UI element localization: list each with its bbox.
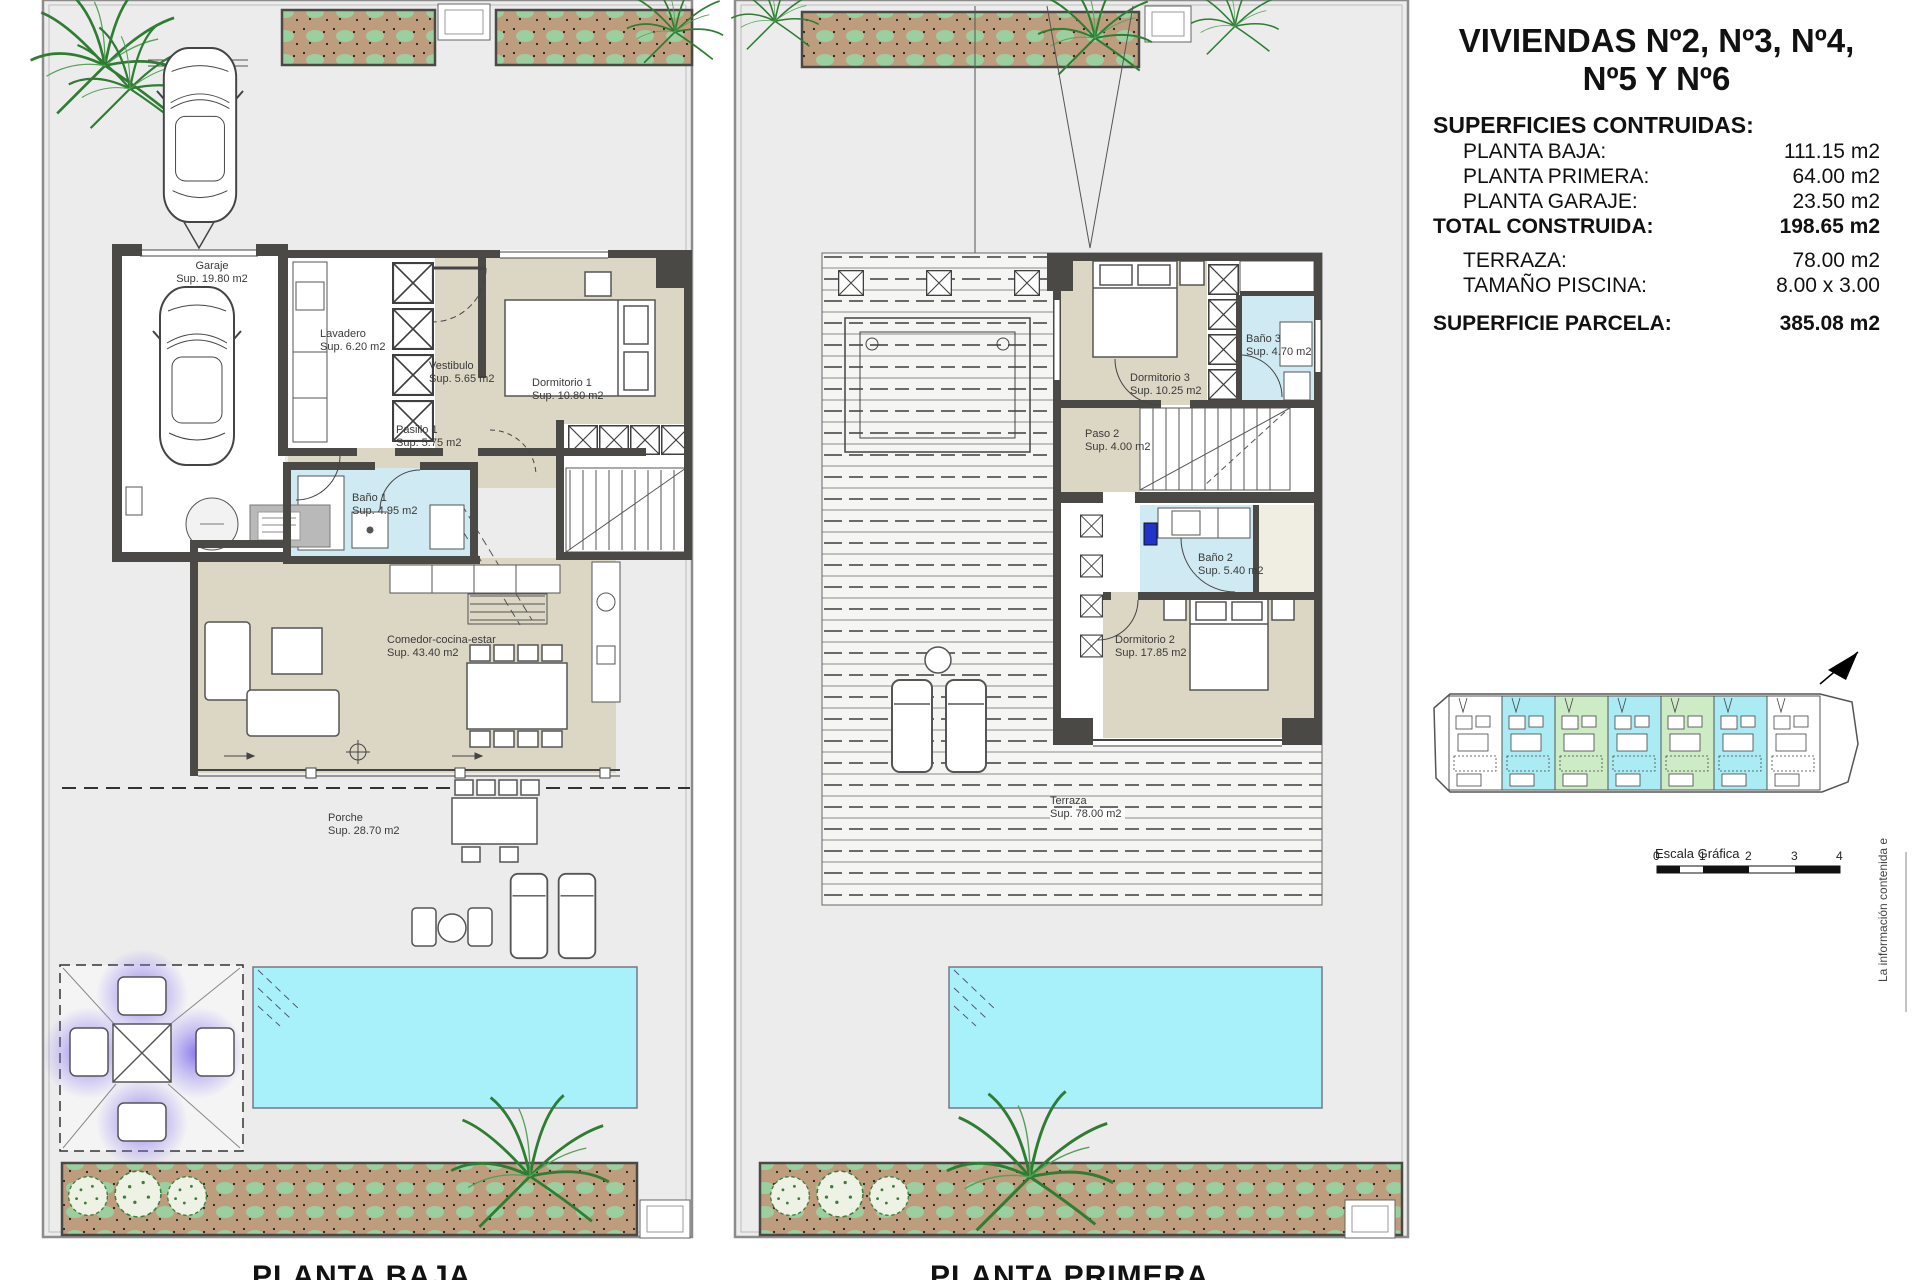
surface-row-piscina: TAMAÑO PISCINA: 8.00 x 3.00 bbox=[1433, 273, 1880, 298]
room-label-lavadero: LavaderoSup. 6.20 m2 bbox=[320, 328, 385, 354]
pool-upper bbox=[949, 967, 1322, 1108]
room-label-dormitorio-2: Dormitorio 2Sup. 17.85 m2 bbox=[1115, 634, 1187, 660]
surface-row-terraza: TERRAZA: 78.00 m2 bbox=[1433, 248, 1880, 273]
plot-planta-baja bbox=[31, 0, 724, 1238]
room-label-pasillo-1: Pasillo 1Sup. 5.75 m2 bbox=[396, 424, 461, 450]
caption-planta-baja: PLANTA BAJA bbox=[252, 1260, 471, 1280]
scale-label: Escala Gráfica bbox=[1655, 846, 1740, 861]
scale-tick-4: 4 bbox=[1836, 849, 1843, 863]
caption-planta-primera: PLANTA PRIMERA bbox=[930, 1260, 1209, 1280]
room-label-garaje: GarajeSup. 19.80 m2 bbox=[164, 260, 260, 286]
scale-tick-3: 3 bbox=[1791, 849, 1798, 863]
room-label-porche: PorcheSup. 28.70 m2 bbox=[328, 812, 400, 838]
scale-tick-2: 2 bbox=[1745, 849, 1752, 863]
scale-tick-1: 1 bbox=[1699, 849, 1706, 863]
plot-planta-primera bbox=[731, 0, 1408, 1238]
pool-ground bbox=[253, 967, 637, 1108]
stairs-upper bbox=[1140, 408, 1290, 490]
room-label-comedor: Comedor-cocina-estarSup. 43.40 m2 bbox=[387, 634, 496, 660]
room-label-bano-3: Baño 3Sup. 4.70 m2 bbox=[1246, 333, 1311, 359]
room-label-vestibulo: VestibuloSup. 5.65 m2 bbox=[429, 360, 494, 386]
room-label-dormitorio-1: Dormitorio 1Sup. 10.80 m2 bbox=[532, 377, 604, 403]
surface-row-planta-baja: PLANTA BAJA: 111.15 m2 bbox=[1433, 139, 1880, 164]
title-block: VIVIENDAS Nº2, Nº3, Nº4, Nº5 Y Nº6 SUPER… bbox=[1433, 22, 1880, 336]
surface-row-parcela: SUPERFICIE PARCELA: 385.08 m2 bbox=[1433, 311, 1880, 336]
sheet-title-line2: Nº5 Y Nº6 bbox=[1433, 60, 1880, 98]
drawing-sheet: VIVIENDAS Nº2, Nº3, Nº4, Nº5 Y Nº6 SUPER… bbox=[0, 0, 1920, 1280]
room-label-terraza: TerrazaSup. 78.00 m2 bbox=[1050, 782, 1125, 821]
chillout-area bbox=[42, 949, 244, 1168]
room-label-bano-2: Baño 2Sup. 5.40 m2 bbox=[1198, 552, 1263, 578]
surface-row-total: TOTAL CONSTRUIDA: 198.65 m2 bbox=[1433, 214, 1880, 239]
surface-row-planta-garaje: PLANTA GARAJE: 23.50 m2 bbox=[1433, 189, 1880, 214]
side-note: La información contenida e bbox=[1876, 838, 1890, 982]
car-garage bbox=[153, 287, 241, 465]
surface-row-planta-primera: PLANTA PRIMERA: 64.00 m2 bbox=[1433, 164, 1880, 189]
surfaces-heading: SUPERFICIES CONTRUIDAS: bbox=[1433, 112, 1880, 139]
room-label-bano-1: Baño 1Sup. 4.95 m2 bbox=[352, 492, 417, 518]
sheet-title-line1: VIVIENDAS Nº2, Nº3, Nº4, bbox=[1433, 22, 1880, 60]
room-label-dormitorio-3: Dormitorio 3Sup. 10.25 m2 bbox=[1130, 372, 1202, 398]
room-label-paso-2: Paso 2Sup. 4.00 m2 bbox=[1085, 428, 1150, 454]
washer-unit bbox=[1144, 523, 1157, 545]
scale-tick-0: 0 bbox=[1653, 849, 1660, 863]
scale-bar bbox=[1657, 866, 1840, 873]
site-key-plan bbox=[1434, 652, 1858, 792]
